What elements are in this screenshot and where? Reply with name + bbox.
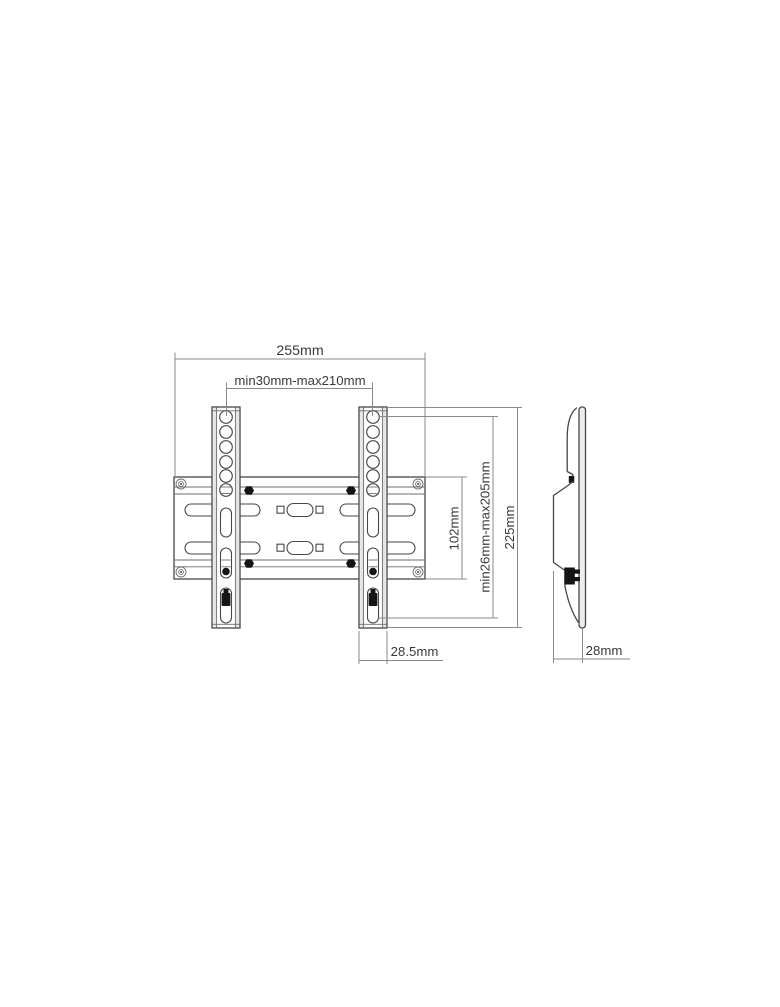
side-wall-plate-profile xyxy=(554,482,579,623)
dim-label-overall-width: 255mm xyxy=(276,343,323,359)
drawing-canvas: 255mm min30mm-max210mm 102mm min26mm-max… xyxy=(0,0,780,1007)
mounting-rail-left xyxy=(212,407,240,628)
mounting-rail-right xyxy=(359,407,387,628)
side-clip-tab-upper xyxy=(573,570,581,574)
dim-label-depth: 28mm xyxy=(586,643,623,658)
side-rail-profile xyxy=(579,407,586,628)
dim-label-rail-width: 28.5mm xyxy=(391,644,439,659)
front-view xyxy=(174,407,425,628)
side-clip-tab-lower xyxy=(573,577,581,581)
dim-label-mount-width-range: min30mm-max210mm xyxy=(234,373,365,388)
dim-label-plate-height: 102mm xyxy=(447,507,462,551)
technical-drawing: 255mm min30mm-max210mm 102mm min26mm-max… xyxy=(0,0,780,1007)
side-top-flange xyxy=(567,408,576,482)
side-view xyxy=(554,407,586,628)
dim-mount-width-range: min30mm-max210mm xyxy=(227,373,373,416)
dim-rail-width: 28.5mm xyxy=(359,631,443,664)
dim-label-mount-height-range: min26mm-max205mm xyxy=(478,461,493,592)
dim-plate-height: 102mm xyxy=(425,477,467,579)
dim-label-overall-height: 225mm xyxy=(502,506,517,550)
